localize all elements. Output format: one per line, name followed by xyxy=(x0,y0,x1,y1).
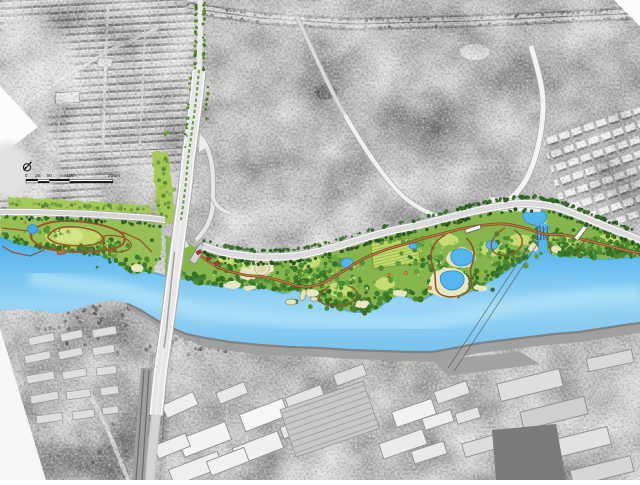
svg-text:50: 50 xyxy=(46,173,52,179)
svg-text:200m: 200m xyxy=(108,173,120,179)
svg-text:0: 0 xyxy=(25,173,28,179)
svg-text:100: 100 xyxy=(66,173,74,179)
svg-text:25: 25 xyxy=(35,173,41,179)
